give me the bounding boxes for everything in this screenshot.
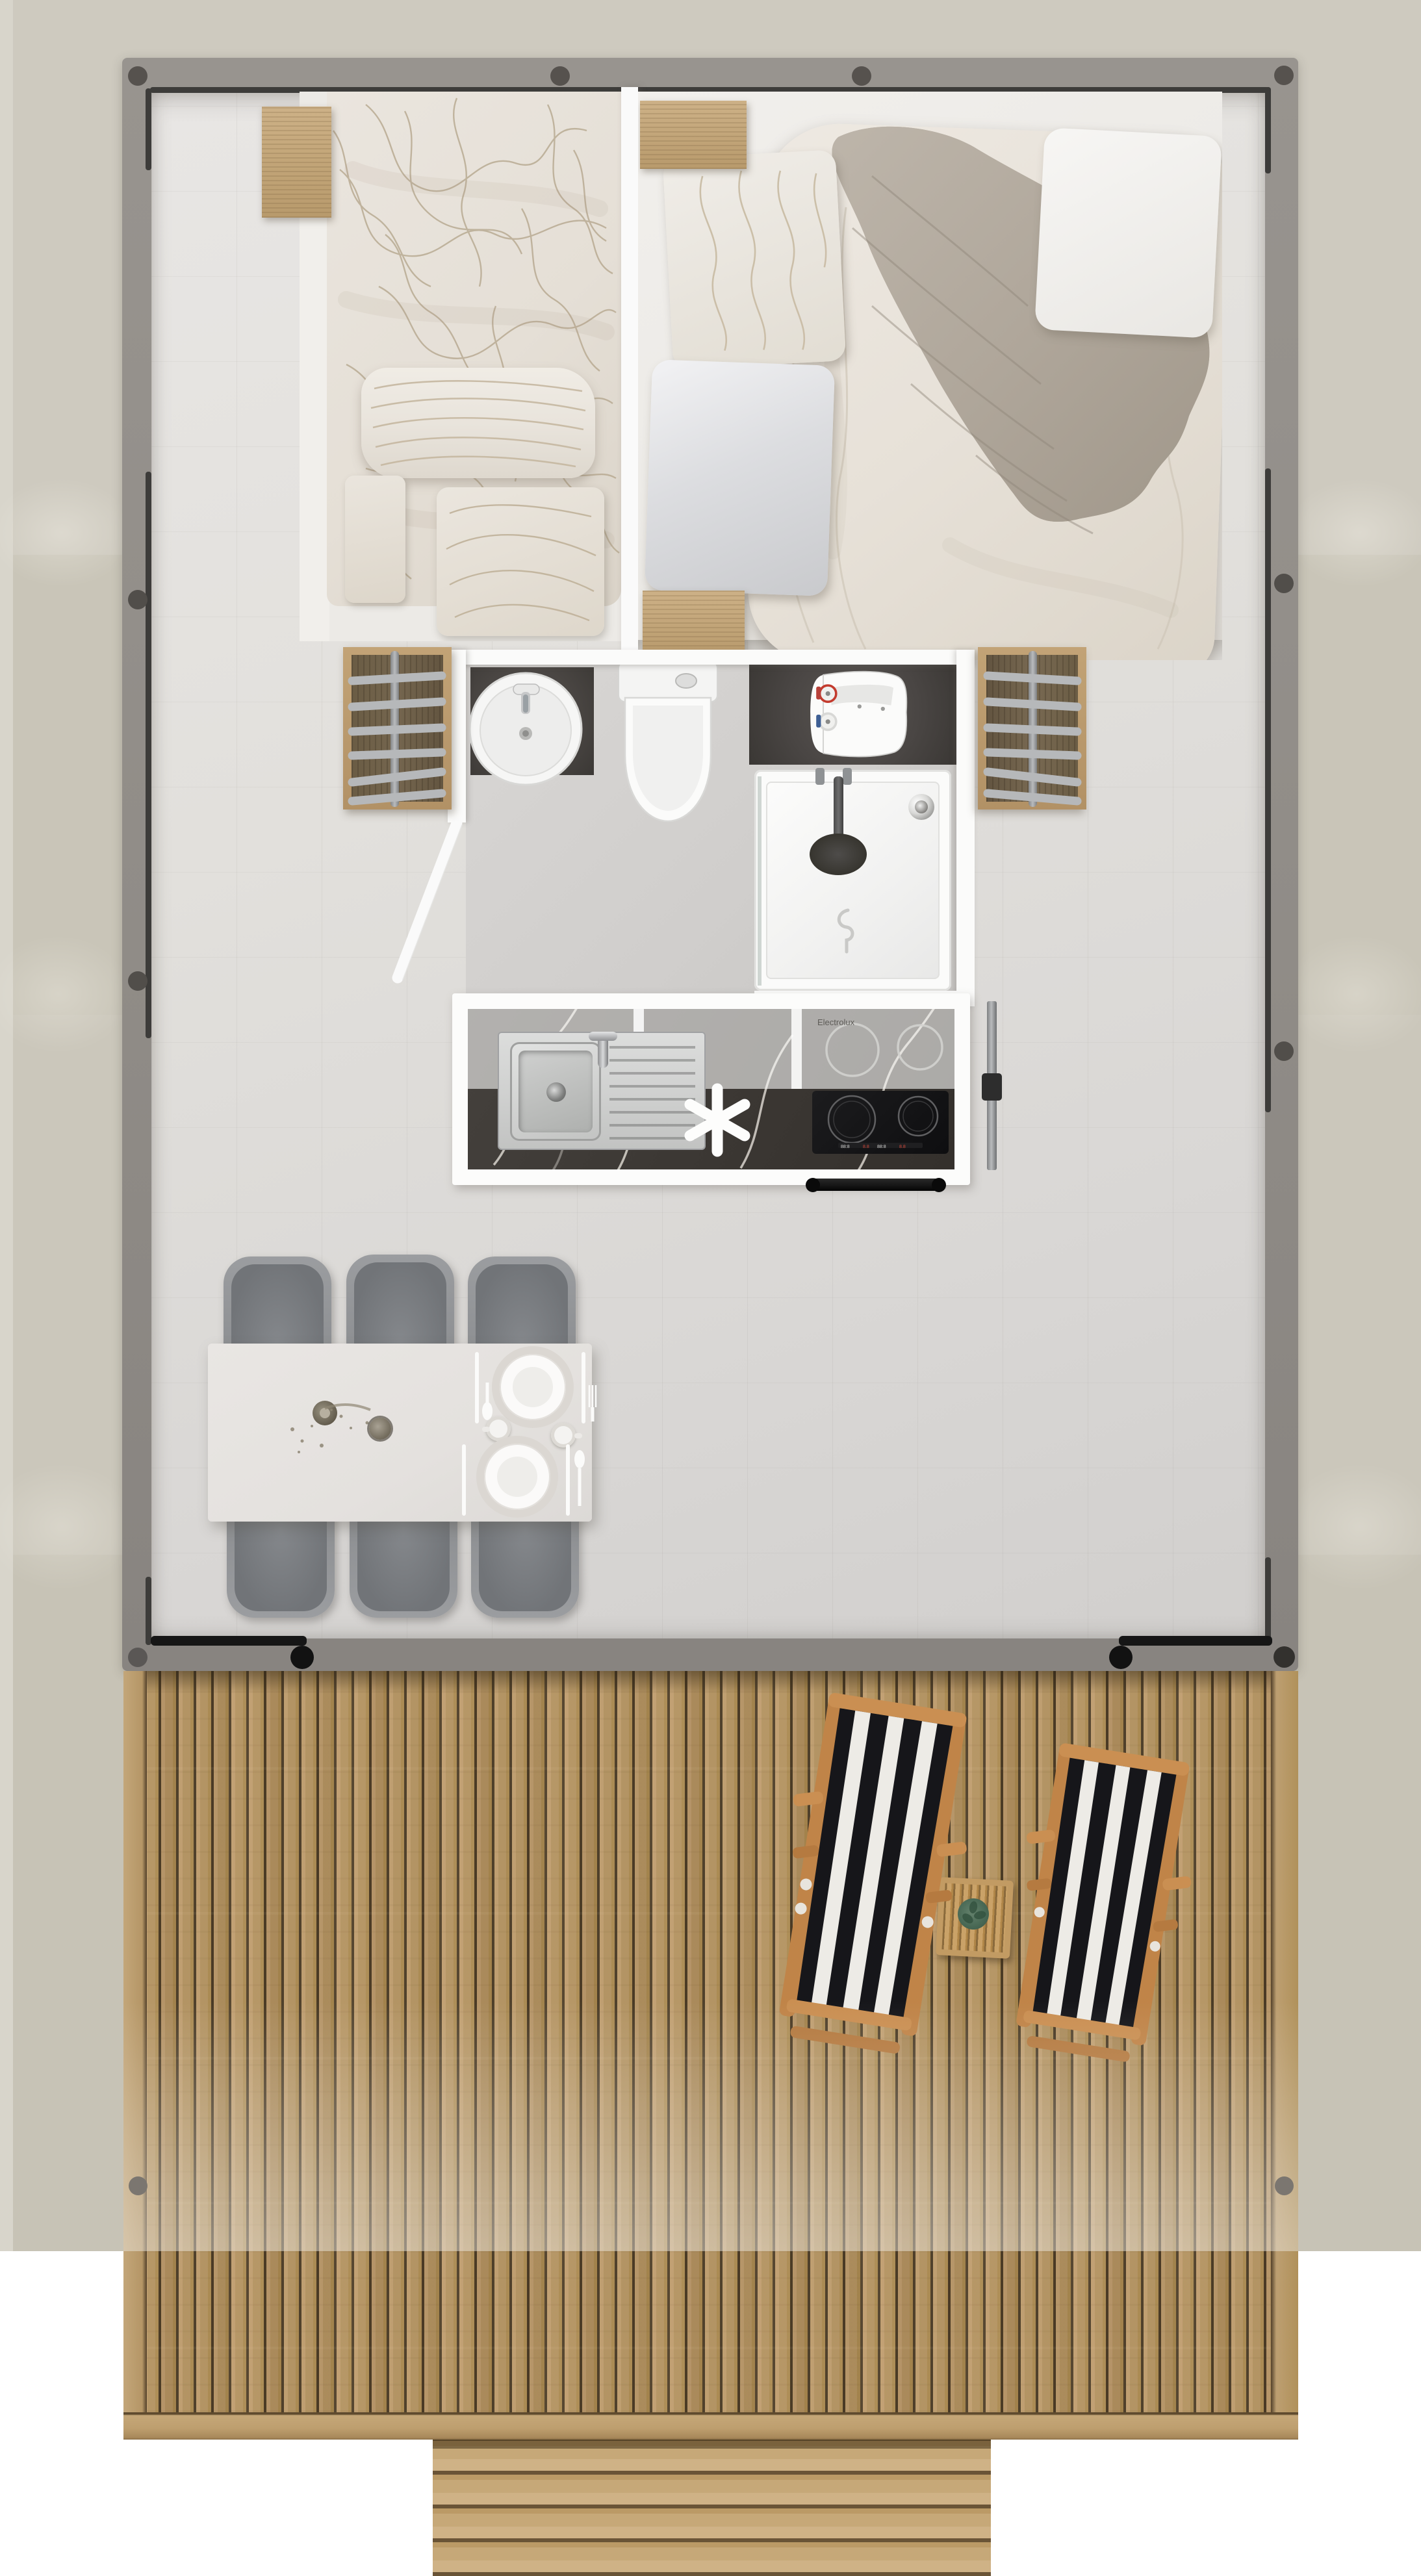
svg-text:88:8: 88:8 [841, 1145, 850, 1149]
svg-text:Electrolux: Electrolux [817, 1017, 855, 1027]
svg-text:88:8: 88:8 [877, 1145, 886, 1149]
svg-text:8.8: 8.8 [899, 1145, 906, 1149]
svg-text:8.8: 8.8 [863, 1145, 869, 1149]
